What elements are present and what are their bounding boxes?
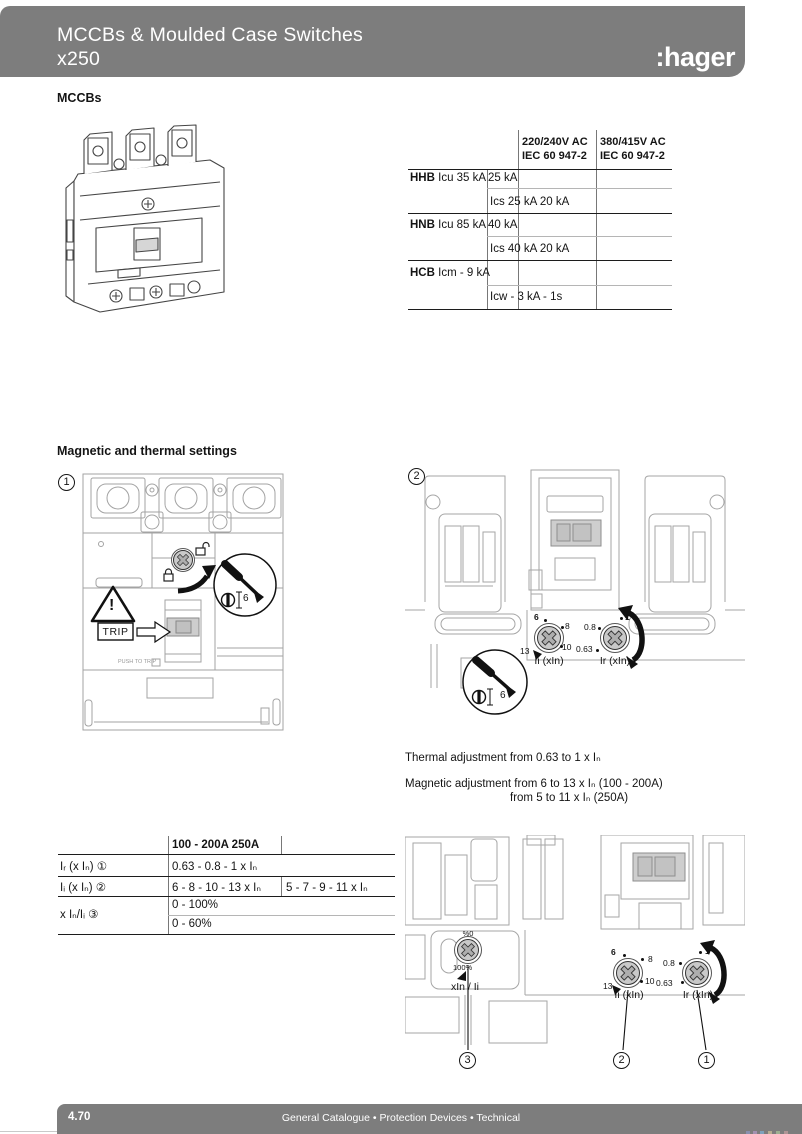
table-line: [408, 309, 672, 310]
dial-ii-label: Ii (xIn): [521, 655, 577, 667]
page-title-line1: MCCBs & Moulded Case Switches: [57, 23, 363, 47]
screwdriver-icon: [463, 650, 527, 714]
trip-label: TRIP: [98, 626, 133, 638]
mccbs-heading: MCCBs: [57, 91, 101, 105]
tick-dot: [681, 981, 684, 984]
tick-1: 1: [625, 612, 630, 622]
tick-dot: [561, 626, 564, 629]
screwdriver-size: 6: [500, 690, 506, 701]
mccb-product-drawing: [60, 124, 260, 320]
dial-ir: [601, 624, 630, 653]
table-line: [408, 213, 672, 214]
table-line: [408, 169, 672, 170]
table-row-value: 25 kA: [488, 172, 517, 184]
tick-8: 8: [565, 621, 570, 631]
series-code: HHB: [410, 172, 435, 184]
push-to-trip-label: PUSH TO TRIP: [118, 659, 156, 665]
dial-ir-label: Ir (xIn): [668, 989, 728, 1001]
column-header-line: IEC 60 947-2: [522, 150, 588, 164]
table-row-label: HCB Icm - 9 kA: [410, 267, 490, 279]
magnetic-adjustment-text: Magnetic adjustment from 6 to 13 x Iₙ (1…: [405, 776, 663, 790]
table-line: [487, 169, 488, 309]
tick-dot: [640, 980, 643, 983]
slotted-screw-icon: [473, 689, 494, 705]
tick-dot: [679, 962, 682, 965]
row-value: 0 - 60%: [172, 918, 212, 930]
table-row-value: Ics 25 kA 20 kA: [490, 196, 569, 208]
dial-ii: [535, 624, 564, 653]
row-value: 5 - 7 - 9 - 11 x Iₙ: [286, 880, 368, 894]
row-value: 0 - 100%: [172, 899, 218, 911]
table-line: [281, 876, 282, 896]
header-bar: MCCBs & Moulded Case Switches x250 :hage…: [0, 6, 745, 77]
screwdriver-size: 6: [243, 593, 249, 604]
tick-dot: [544, 619, 547, 622]
table-row-label: HNB Icu 85 kA: [410, 219, 486, 231]
tick-0-63: 0.63: [656, 978, 673, 988]
table-row-value: Ics 40 kA 20 kA: [490, 243, 569, 255]
row-label-ii: Iᵢ (x Iₙ) ②: [60, 880, 106, 894]
tick-0-8: 0.8: [584, 622, 596, 632]
diagram-thermal-adjust: 1 ! TRIP PUSH TO TRIP 6: [58, 470, 378, 738]
diagram-number-2: 2: [408, 468, 425, 485]
table-line: [408, 260, 672, 261]
padlock-closed-icon: [164, 569, 173, 581]
table-line: [58, 876, 395, 877]
table-line: [58, 896, 395, 897]
footer-text: General Catalogue • Protection Devices •…: [0, 1112, 802, 1124]
breaker-interior-drawing: [405, 462, 745, 740]
row-value: 6 - 8 - 10 - 13 x Iₙ: [172, 880, 261, 894]
table-row-value: 40 kA: [488, 219, 517, 231]
series-rating: Icm - 9 kA: [438, 267, 490, 279]
table-row-label: HHB Icu 35 kA: [410, 172, 486, 184]
tick-dot: [620, 617, 623, 620]
phillips-knob-icon: [172, 549, 195, 572]
series-rating: Icu 85 kA: [438, 219, 486, 231]
diagram-dials-callouts: %0 100% xIn / Ii 6 8 10 13 Ii (xIn) 1 0.…: [405, 835, 745, 1080]
table-line: [596, 130, 597, 309]
table-line: [518, 130, 519, 309]
tick-6: 6: [534, 612, 539, 622]
column-header-line: 380/415V AC: [600, 136, 666, 150]
tick-6: 6: [611, 947, 616, 957]
table-line: [168, 836, 169, 934]
diagram-dials-closeup: 2 6 8 10 13 Ii (xIn) 1 0.8 0.63 Ir (xIn)…: [405, 462, 745, 740]
table-line: [168, 915, 395, 916]
settings-table-header: 100 - 200A 250A: [172, 839, 259, 851]
dial-percent-bottom: 100%: [453, 963, 472, 972]
footer-edge-line: [0, 1131, 57, 1132]
table-line: [58, 854, 395, 855]
dial-ir: [683, 959, 712, 988]
page-title-line2: x250: [57, 47, 363, 71]
callout-3: 3: [459, 1052, 476, 1069]
magnetic-adjustment-text2: from 5 to 11 x Iₙ (250A): [510, 790, 628, 804]
series-code: HCB: [410, 267, 435, 279]
column-header-220: 220/240V AC IEC 60 947-2: [522, 136, 588, 163]
table-line: [487, 188, 672, 189]
column-header-line: IEC 60 947-2: [600, 150, 666, 164]
breaker-interior-drawing-2: [405, 835, 745, 1080]
thermal-adjustment-text: Thermal adjustment from 0.63 to 1 x Iₙ: [405, 750, 601, 764]
column-header-380: 380/415V AC IEC 60 947-2: [600, 136, 666, 163]
tick-1: 1: [705, 946, 710, 956]
dial-ii-label: Ii (xIn): [600, 989, 658, 1001]
screwdriver-icon: [214, 554, 276, 616]
tick-0-8: 0.8: [663, 958, 675, 968]
row-value: 0.63 - 0.8 - 1 x Iₙ: [172, 859, 257, 873]
settings-heading: Magnetic and thermal settings: [57, 444, 237, 458]
row-label-ir: Iᵣ (x Iₙ) ①: [60, 859, 107, 873]
series-code: HNB: [410, 219, 435, 231]
dial-ii: [614, 959, 643, 988]
diagram-number-1: 1: [58, 474, 75, 491]
dial-ir-label: Ir (xIn): [585, 655, 645, 667]
tick-dot: [596, 649, 599, 652]
dial-percent-label: xIn / Ii: [435, 981, 495, 993]
table-line: [281, 836, 282, 854]
catalogue-page: MCCBs & Moulded Case Switches x250 :hage…: [0, 0, 802, 1134]
callout-2: 2: [613, 1052, 630, 1069]
tick-dot: [623, 954, 626, 957]
row-label-xin-ii: x Iₙ/Iᵢ ③: [60, 907, 98, 921]
tick-10: 10: [562, 642, 571, 652]
slotted-screw-icon: [222, 592, 243, 608]
column-header-line: 220/240V AC: [522, 136, 588, 150]
table-line: [487, 285, 672, 286]
callout-1: 1: [698, 1052, 715, 1069]
tick-10: 10: [645, 976, 654, 986]
table-line: [58, 934, 395, 935]
hager-logo: :hager: [655, 42, 735, 73]
breaker-front-drawing: [58, 470, 378, 738]
tick-dot: [641, 958, 644, 961]
table-row-value: Icw - 3 kA - 1s: [490, 291, 562, 303]
tick-8: 8: [648, 954, 653, 964]
table-line: [487, 236, 672, 237]
padlock-open-icon: [196, 543, 209, 556]
page-title: MCCBs & Moulded Case Switches x250: [57, 23, 363, 71]
dial-percent-top: %0: [457, 929, 479, 938]
tick-dot: [598, 627, 601, 630]
tick-0-63: 0.63: [576, 644, 593, 654]
series-rating: Icu 35 kA: [438, 172, 486, 184]
dial-percent: [455, 937, 482, 964]
tick-dot: [699, 951, 702, 954]
warning-exclamation: !: [109, 597, 114, 615]
pointer-arrow-icon: [457, 971, 466, 981]
tick-dot: [560, 645, 563, 648]
